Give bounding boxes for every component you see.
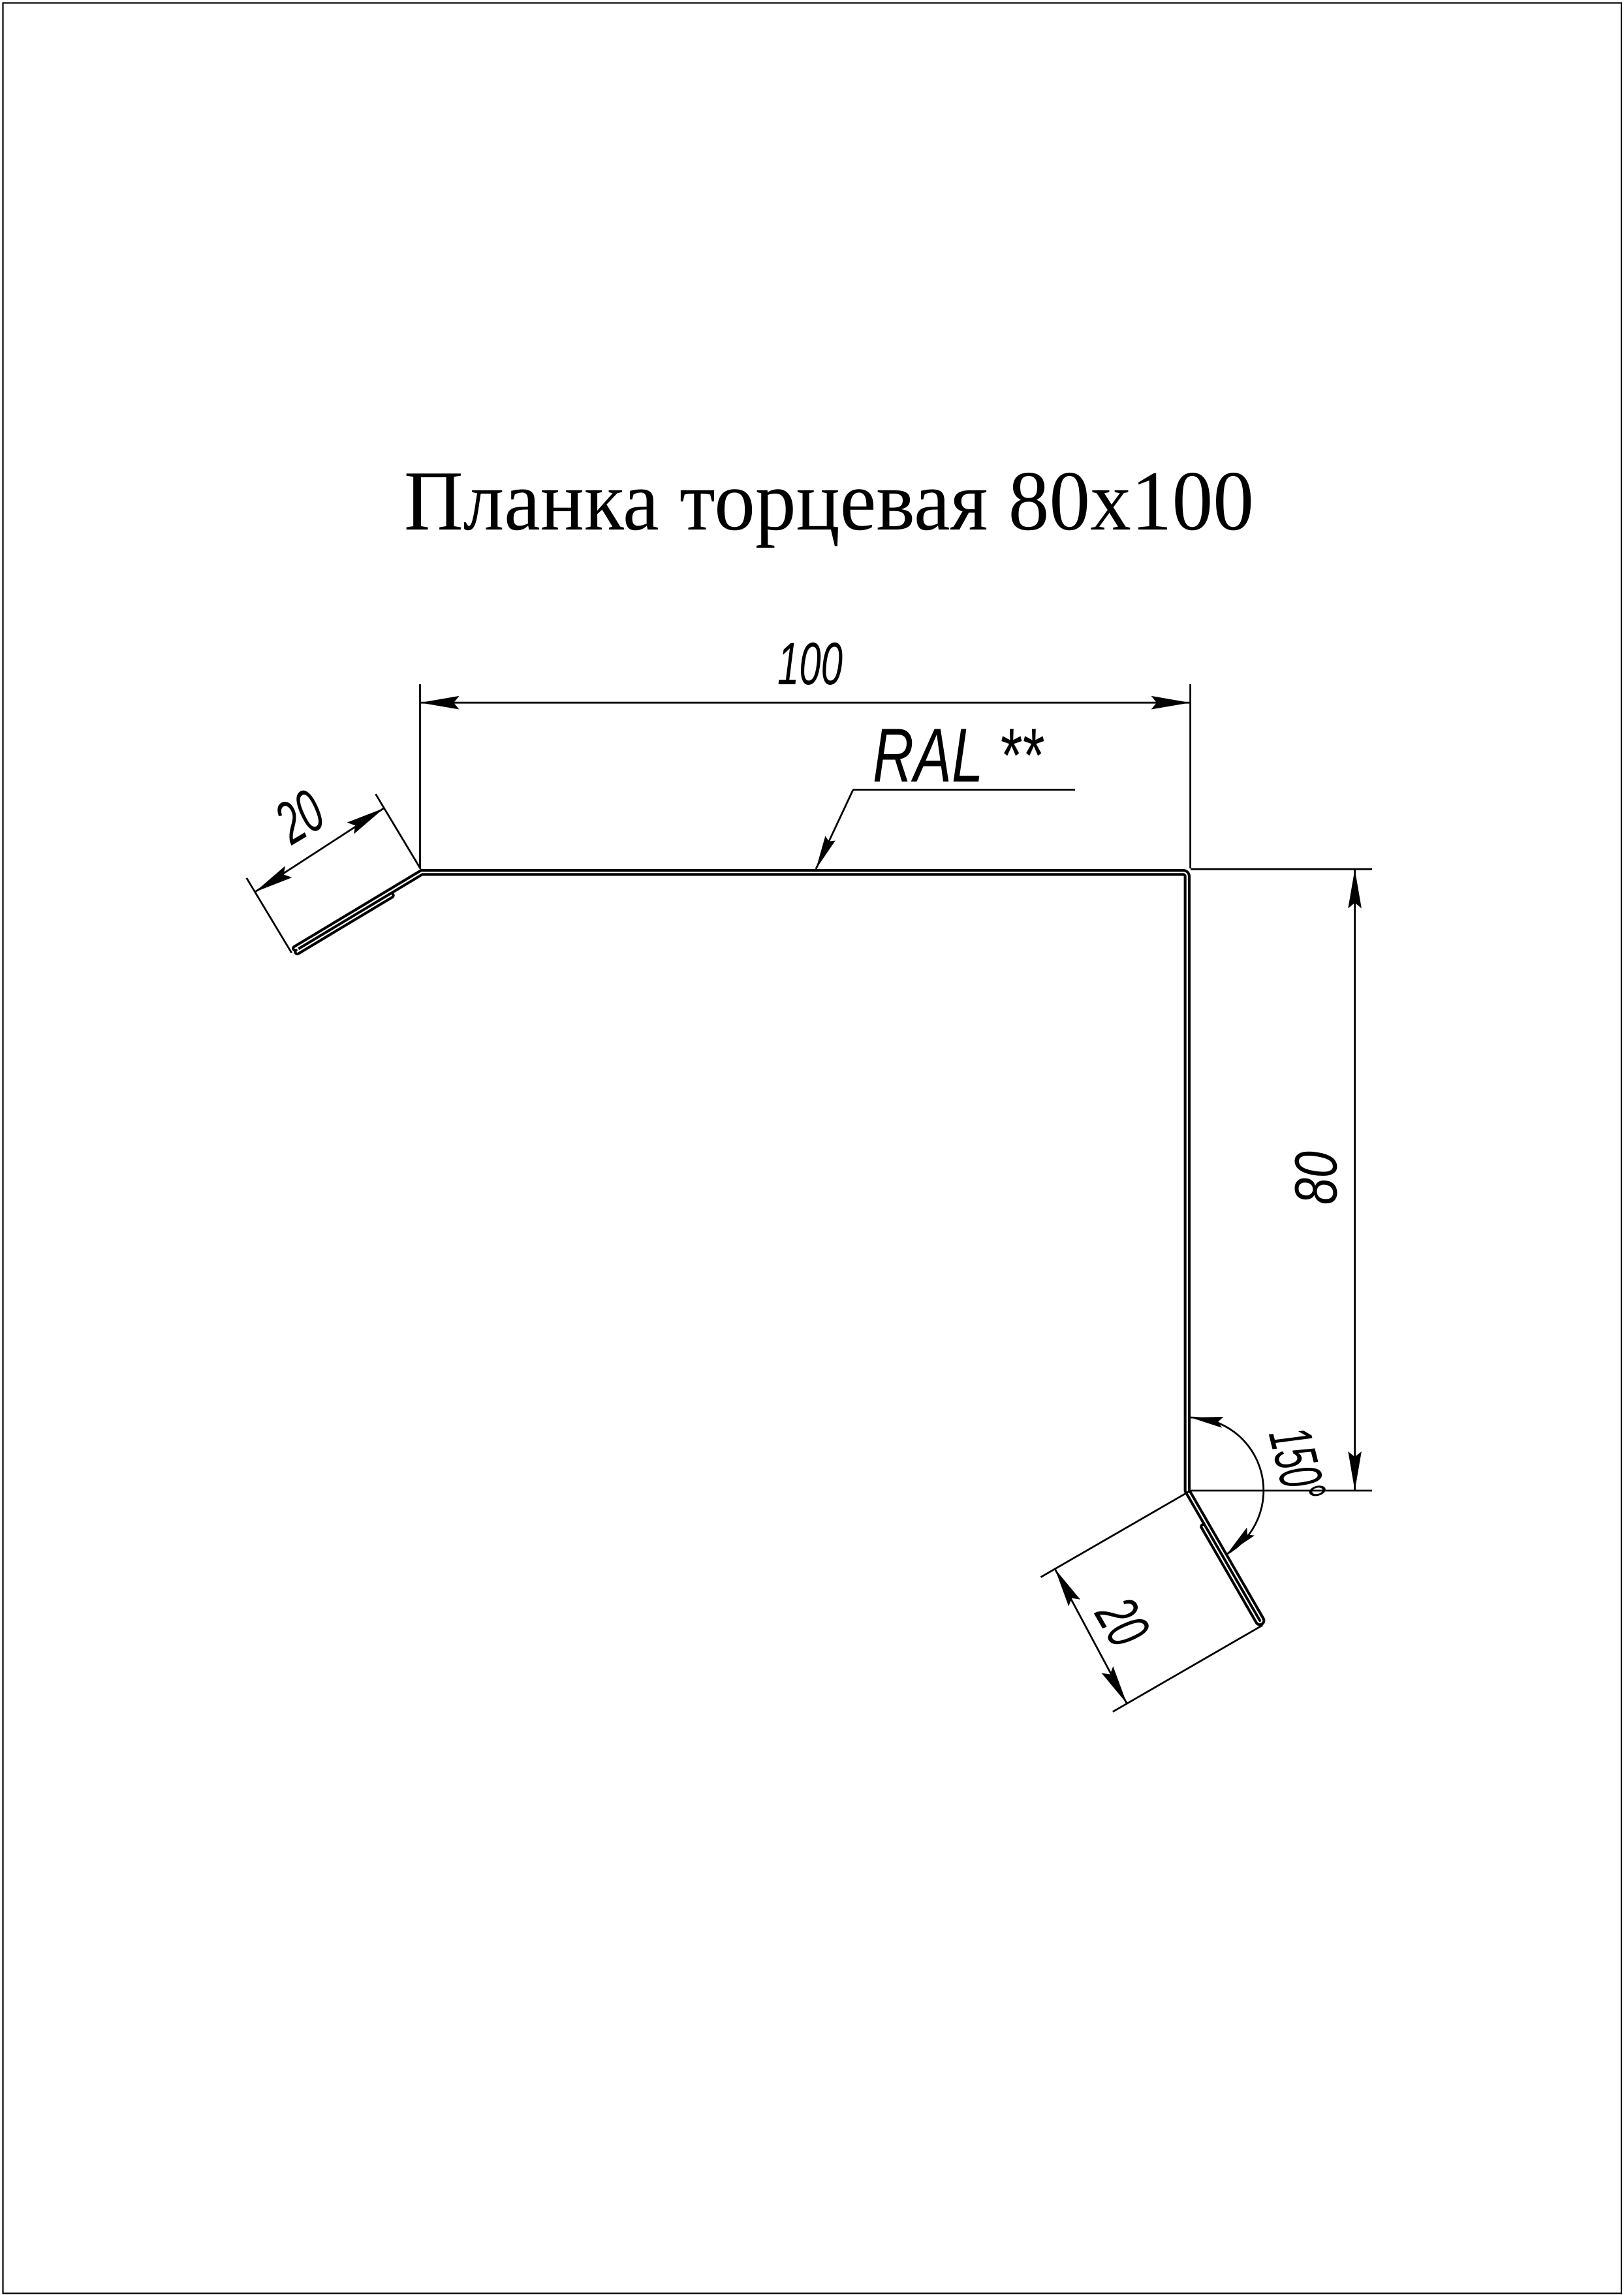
svg-text:RAL **: RAL ** bbox=[873, 712, 1044, 798]
svg-text:Планка торцевая 80х100: Планка торцевая 80х100 bbox=[404, 454, 1254, 548]
svg-text:100: 100 bbox=[777, 631, 843, 697]
svg-text:80: 80 bbox=[1283, 1151, 1350, 1205]
